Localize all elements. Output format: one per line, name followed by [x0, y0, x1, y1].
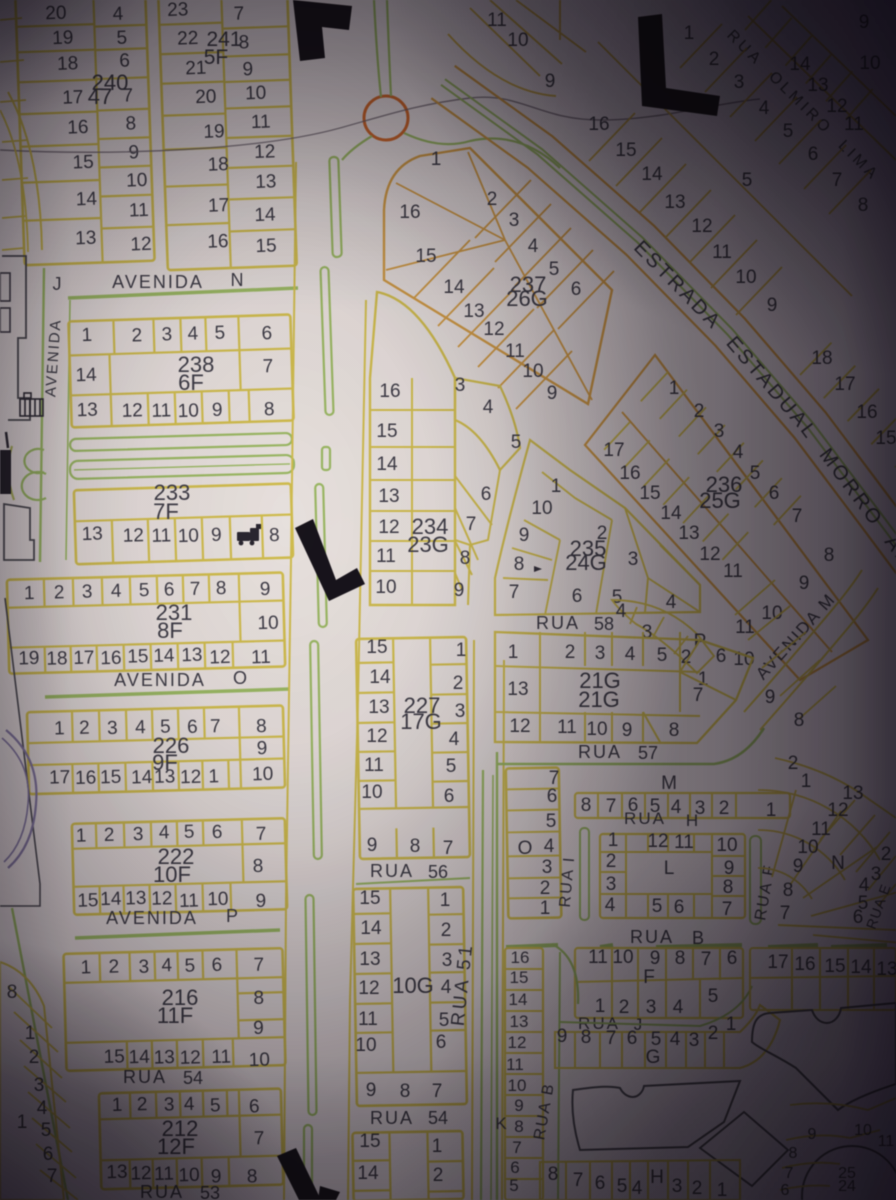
- svg-text:1: 1: [551, 476, 562, 497]
- svg-text:G: G: [646, 1047, 661, 1068]
- svg-text:14: 14: [131, 767, 153, 789]
- svg-text:14: 14: [128, 1047, 150, 1069]
- svg-text:11: 11: [506, 1055, 524, 1074]
- svg-text:5: 5: [546, 811, 557, 832]
- svg-text:12: 12: [180, 767, 202, 789]
- svg-text:7: 7: [432, 1081, 443, 1102]
- svg-text:9: 9: [859, 12, 870, 33]
- svg-text:2: 2: [719, 798, 730, 819]
- svg-text:6: 6: [212, 822, 223, 843]
- svg-text:4: 4: [449, 729, 460, 750]
- svg-text:15: 15: [255, 235, 277, 257]
- svg-text:13: 13: [463, 301, 484, 322]
- svg-text:13: 13: [876, 959, 896, 980]
- svg-text:8: 8: [669, 720, 680, 741]
- svg-text:K: K: [495, 1114, 507, 1133]
- svg-text:N: N: [231, 270, 244, 290]
- svg-text:17: 17: [767, 952, 788, 973]
- svg-text:10: 10: [177, 400, 199, 422]
- svg-text:6: 6: [510, 1158, 519, 1177]
- svg-text:8: 8: [824, 545, 835, 566]
- svg-text:10: 10: [249, 1050, 271, 1072]
- svg-text:8: 8: [252, 856, 263, 877]
- svg-text:3: 3: [82, 581, 93, 602]
- svg-text:5: 5: [41, 1120, 52, 1141]
- svg-text:3: 3: [455, 701, 466, 722]
- svg-text:6: 6: [808, 144, 819, 165]
- svg-text:9: 9: [211, 525, 222, 546]
- svg-text:16: 16: [588, 114, 609, 135]
- svg-text:8: 8: [247, 1166, 258, 1187]
- svg-text:12: 12: [358, 978, 379, 999]
- svg-text:25G: 25G: [699, 488, 741, 513]
- svg-text:1: 1: [456, 640, 467, 661]
- svg-text:3: 3: [442, 950, 453, 971]
- svg-text:13: 13: [81, 523, 103, 545]
- svg-text:8: 8: [675, 948, 686, 969]
- svg-text:7: 7: [443, 838, 454, 859]
- svg-text:18: 18: [57, 53, 79, 75]
- svg-text:3: 3: [455, 375, 466, 396]
- svg-text:8: 8: [783, 880, 794, 901]
- svg-text:12: 12: [647, 831, 668, 852]
- svg-text:19: 19: [203, 121, 225, 143]
- svg-text:2: 2: [441, 920, 452, 941]
- svg-text:14: 14: [75, 365, 97, 387]
- svg-text:11: 11: [151, 525, 171, 547]
- svg-text:2: 2: [104, 825, 115, 846]
- svg-text:9: 9: [454, 580, 465, 601]
- svg-text:14: 14: [369, 667, 391, 688]
- svg-text:L: L: [664, 858, 675, 879]
- svg-text:16: 16: [379, 381, 400, 402]
- svg-text:10: 10: [245, 83, 267, 105]
- svg-text:15: 15: [376, 421, 397, 442]
- svg-text:20: 20: [45, 3, 67, 25]
- svg-text:17: 17: [49, 767, 71, 789]
- svg-text:58: 58: [594, 614, 614, 634]
- svg-text:9: 9: [724, 858, 735, 879]
- svg-text:7: 7: [253, 955, 264, 976]
- svg-text:3: 3: [714, 421, 725, 442]
- svg-text:11: 11: [557, 717, 577, 738]
- svg-text:11: 11: [251, 647, 271, 669]
- svg-text:1: 1: [801, 771, 812, 792]
- svg-text:6: 6: [571, 279, 582, 300]
- svg-text:3: 3: [161, 324, 172, 345]
- svg-text:O: O: [233, 668, 247, 688]
- svg-text:12: 12: [122, 525, 144, 547]
- svg-text:4: 4: [671, 797, 682, 818]
- svg-text:6: 6: [119, 50, 130, 71]
- svg-text:10: 10: [531, 498, 552, 519]
- svg-text:6: 6: [769, 483, 780, 504]
- svg-text:6: 6: [627, 1028, 638, 1049]
- svg-text:1: 1: [17, 1112, 28, 1133]
- svg-text:3: 3: [628, 549, 639, 570]
- svg-text:12: 12: [209, 647, 231, 669]
- svg-text:9: 9: [767, 295, 778, 316]
- svg-text:3: 3: [595, 643, 606, 664]
- svg-text:2: 2: [137, 1094, 148, 1115]
- svg-text:8: 8: [460, 548, 471, 569]
- svg-text:24: 24: [838, 1178, 856, 1195]
- svg-text:21G: 21G: [578, 687, 620, 712]
- svg-text:3: 3: [509, 210, 520, 231]
- svg-text:1: 1: [24, 583, 35, 604]
- svg-text:1: 1: [76, 825, 87, 846]
- svg-text:1: 1: [726, 1014, 737, 1035]
- svg-text:47: 47: [88, 84, 112, 109]
- svg-text:2: 2: [881, 844, 892, 865]
- svg-text:3: 3: [542, 857, 553, 878]
- svg-text:7: 7: [509, 582, 520, 603]
- svg-text:5F: 5F: [204, 46, 229, 69]
- svg-text:13: 13: [153, 1047, 175, 1069]
- svg-text:4: 4: [666, 592, 677, 613]
- svg-text:16: 16: [399, 202, 420, 223]
- svg-text:2: 2: [606, 851, 617, 872]
- svg-text:1: 1: [684, 23, 695, 44]
- svg-text:2: 2: [619, 997, 630, 1018]
- svg-text:6: 6: [595, 1173, 606, 1194]
- svg-text:13: 13: [378, 486, 399, 507]
- svg-text:6: 6: [164, 579, 175, 600]
- svg-text:5: 5: [652, 896, 663, 917]
- svg-text:16: 16: [619, 463, 640, 484]
- svg-text:17: 17: [603, 440, 624, 461]
- svg-text:14: 14: [850, 957, 872, 978]
- svg-text:9: 9: [128, 142, 139, 163]
- svg-text:1: 1: [669, 378, 680, 399]
- svg-text:1: 1: [508, 642, 519, 663]
- svg-text:4: 4: [616, 601, 627, 622]
- svg-text:15: 15: [127, 646, 149, 668]
- svg-text:3: 3: [34, 1075, 45, 1096]
- svg-text:8: 8: [723, 877, 734, 898]
- svg-text:RUA: RUA: [140, 1182, 184, 1200]
- svg-text:1: 1: [440, 890, 451, 911]
- svg-text:8: 8: [7, 982, 18, 1003]
- svg-text:7: 7: [606, 796, 617, 817]
- svg-text:15: 15: [72, 152, 94, 174]
- svg-text:AVENIDA: AVENIDA: [106, 908, 198, 928]
- svg-text:15: 15: [415, 246, 436, 267]
- svg-text:9: 9: [765, 687, 776, 708]
- svg-text:M: M: [661, 773, 677, 794]
- svg-text:7: 7: [233, 3, 244, 24]
- svg-text:9: 9: [519, 525, 530, 546]
- svg-text:7: 7: [701, 949, 712, 970]
- svg-text:7F: 7F: [153, 499, 179, 524]
- svg-text:5: 5: [742, 170, 753, 191]
- svg-text:9: 9: [255, 891, 266, 912]
- svg-text:2: 2: [487, 189, 498, 210]
- svg-text:9: 9: [260, 579, 271, 600]
- svg-text:14: 14: [509, 990, 528, 1009]
- svg-text:J: J: [53, 274, 62, 294]
- svg-text:7: 7: [466, 514, 477, 535]
- svg-text:4: 4: [625, 644, 636, 665]
- svg-text:11: 11: [505, 341, 525, 362]
- svg-text:5: 5: [783, 121, 794, 142]
- svg-text:8: 8: [789, 1145, 798, 1162]
- svg-text:8: 8: [256, 716, 267, 737]
- svg-text:9: 9: [793, 856, 804, 877]
- svg-text:12: 12: [121, 400, 143, 422]
- svg-text:5: 5: [214, 323, 225, 344]
- svg-text:5: 5: [617, 1176, 628, 1197]
- svg-text:14: 14: [100, 889, 122, 911]
- svg-text:24G: 24G: [565, 550, 607, 575]
- svg-text:P: P: [226, 906, 238, 926]
- svg-text:16: 16: [207, 231, 229, 253]
- svg-text:RUA: RUA: [578, 742, 622, 762]
- svg-text:2: 2: [131, 325, 142, 346]
- svg-text:3: 3: [138, 957, 149, 978]
- svg-text:10: 10: [854, 1122, 872, 1139]
- svg-text:6: 6: [249, 1096, 260, 1117]
- svg-text:3: 3: [646, 997, 657, 1018]
- svg-text:10F: 10F: [153, 862, 191, 887]
- svg-text:12: 12: [509, 716, 530, 737]
- svg-text:12: 12: [378, 517, 399, 538]
- svg-text:8: 8: [548, 1164, 559, 1185]
- svg-text:13: 13: [76, 400, 98, 422]
- svg-text:14: 14: [254, 204, 276, 226]
- svg-text:7: 7: [512, 1138, 521, 1157]
- svg-text:15: 15: [510, 968, 529, 987]
- svg-text:10: 10: [508, 1076, 527, 1095]
- svg-text:8: 8: [216, 578, 227, 599]
- svg-text:10: 10: [257, 613, 279, 635]
- svg-text:AVENIDA: AVENIDA: [114, 670, 206, 690]
- svg-text:8: 8: [125, 113, 136, 134]
- svg-text:15: 15: [359, 888, 380, 909]
- svg-text:2: 2: [79, 718, 90, 739]
- svg-text:4: 4: [112, 4, 124, 25]
- svg-text:11: 11: [723, 561, 743, 582]
- svg-text:12F: 12F: [157, 1134, 195, 1159]
- svg-text:O: O: [518, 838, 533, 859]
- svg-text:1: 1: [54, 718, 65, 739]
- svg-text:57: 57: [638, 743, 658, 763]
- svg-text:7: 7: [47, 1166, 58, 1187]
- svg-text:5: 5: [549, 259, 560, 280]
- svg-text:8: 8: [514, 554, 525, 575]
- svg-text:6: 6: [853, 907, 864, 928]
- svg-text:RUA: RUA: [370, 861, 414, 881]
- svg-text:15: 15: [875, 428, 896, 449]
- svg-text:3: 3: [133, 824, 144, 845]
- svg-text:6: 6: [781, 1182, 790, 1199]
- svg-text:8: 8: [858, 195, 869, 216]
- svg-text:1: 1: [432, 1136, 443, 1157]
- svg-text:16: 16: [856, 402, 877, 423]
- svg-text:9: 9: [622, 720, 633, 741]
- svg-text:8: 8: [400, 1081, 411, 1102]
- svg-text:1: 1: [540, 898, 551, 919]
- svg-text:5: 5: [708, 986, 719, 1007]
- svg-text:11: 11: [376, 546, 396, 567]
- svg-text:54: 54: [428, 1108, 448, 1128]
- svg-text:H: H: [686, 811, 698, 830]
- svg-text:15: 15: [100, 767, 122, 789]
- svg-text:7: 7: [254, 1128, 265, 1149]
- svg-text:RUA: RUA: [123, 1067, 167, 1087]
- svg-text:11: 11: [364, 755, 384, 776]
- svg-text:11: 11: [712, 242, 732, 263]
- svg-text:11: 11: [251, 111, 271, 133]
- svg-text:7: 7: [573, 1170, 584, 1191]
- svg-text:17: 17: [208, 195, 230, 217]
- svg-text:9: 9: [242, 59, 253, 80]
- svg-text:4: 4: [673, 997, 684, 1018]
- svg-text:11: 11: [588, 947, 608, 968]
- svg-text:4: 4: [111, 581, 123, 602]
- svg-text:2: 2: [433, 1165, 444, 1186]
- svg-text:2: 2: [788, 753, 799, 774]
- svg-text:3: 3: [164, 1094, 175, 1115]
- svg-text:13: 13: [368, 697, 389, 718]
- svg-text:22: 22: [177, 28, 199, 50]
- svg-text:7: 7: [792, 506, 803, 527]
- svg-text:2: 2: [453, 673, 464, 694]
- svg-text:11: 11: [129, 200, 149, 222]
- svg-text:18: 18: [811, 348, 832, 369]
- svg-text:8F: 8F: [157, 618, 183, 643]
- svg-text:1: 1: [112, 1095, 123, 1116]
- svg-text:1: 1: [431, 149, 442, 170]
- svg-text:10: 10: [177, 525, 199, 547]
- svg-text:5: 5: [509, 1176, 518, 1195]
- svg-text:7: 7: [780, 903, 791, 924]
- svg-text:4: 4: [159, 822, 171, 843]
- svg-text:15: 15: [824, 956, 845, 977]
- svg-text:10: 10: [355, 1035, 376, 1056]
- svg-text:1: 1: [25, 1023, 36, 1044]
- svg-text:3: 3: [689, 1030, 700, 1051]
- svg-text:17: 17: [73, 647, 95, 669]
- svg-text:7: 7: [256, 824, 267, 845]
- svg-text:4: 4: [135, 717, 147, 738]
- svg-text:11: 11: [487, 10, 507, 31]
- svg-text:26G: 26G: [506, 286, 548, 311]
- svg-text:10: 10: [586, 719, 607, 740]
- svg-text:11: 11: [844, 114, 864, 135]
- svg-text:1: 1: [208, 766, 219, 787]
- svg-text:4: 4: [37, 1098, 48, 1119]
- svg-text:7: 7: [693, 685, 704, 706]
- svg-text:9: 9: [367, 835, 378, 856]
- svg-text:7: 7: [190, 579, 201, 600]
- svg-text:6: 6: [481, 484, 492, 505]
- svg-text:RUA: RUA: [370, 1108, 414, 1128]
- svg-text:13: 13: [255, 171, 277, 193]
- svg-text:H: H: [650, 1167, 664, 1188]
- svg-text:2: 2: [54, 582, 65, 603]
- svg-text:9: 9: [253, 1018, 264, 1039]
- svg-text:14: 14: [376, 454, 398, 475]
- svg-text:6F: 6F: [178, 370, 204, 395]
- svg-text:11: 11: [735, 617, 755, 638]
- svg-text:RUA: RUA: [536, 613, 580, 633]
- svg-text:5: 5: [184, 822, 195, 843]
- svg-text:13: 13: [510, 1012, 529, 1031]
- svg-text:17: 17: [834, 374, 855, 395]
- svg-text:53: 53: [200, 1183, 220, 1200]
- svg-text:23: 23: [167, 0, 189, 21]
- svg-text:16: 16: [511, 948, 530, 967]
- svg-text:16: 16: [794, 954, 815, 975]
- svg-text:15: 15: [103, 1046, 125, 1068]
- svg-text:6: 6: [716, 646, 727, 667]
- svg-text:4: 4: [483, 397, 494, 418]
- svg-text:10: 10: [735, 267, 756, 288]
- svg-text:1: 1: [80, 957, 91, 978]
- svg-text:3: 3: [734, 72, 745, 93]
- svg-text:16: 16: [75, 767, 97, 789]
- svg-text:10: 10: [716, 835, 737, 856]
- svg-text:9: 9: [212, 400, 223, 421]
- svg-text:1: 1: [766, 800, 777, 821]
- svg-text:13: 13: [181, 645, 203, 667]
- svg-text:10: 10: [252, 764, 274, 786]
- svg-text:8: 8: [581, 1027, 592, 1048]
- svg-text:4: 4: [184, 1094, 196, 1115]
- svg-text:14: 14: [357, 1163, 379, 1184]
- svg-text:13: 13: [807, 75, 828, 96]
- svg-text:7: 7: [832, 170, 843, 191]
- svg-text:16: 16: [67, 117, 89, 139]
- svg-text:12: 12: [254, 141, 276, 163]
- svg-text:6: 6: [211, 955, 222, 976]
- svg-text:13: 13: [678, 523, 699, 544]
- svg-text:10: 10: [797, 837, 818, 858]
- svg-text:23G: 23G: [407, 532, 449, 557]
- svg-text:14: 14: [660, 503, 682, 524]
- svg-text:19: 19: [18, 648, 40, 670]
- svg-text:5: 5: [184, 955, 195, 976]
- svg-text:12: 12: [827, 800, 848, 821]
- svg-text:2: 2: [29, 1047, 40, 1068]
- svg-text:1: 1: [81, 325, 92, 346]
- svg-text:20: 20: [195, 86, 217, 108]
- svg-text:7: 7: [210, 716, 221, 737]
- svg-text:10: 10: [522, 361, 543, 382]
- svg-text:6: 6: [674, 897, 685, 918]
- svg-text:5: 5: [446, 756, 457, 777]
- svg-text:12: 12: [179, 1047, 201, 1069]
- svg-text:14: 14: [641, 164, 663, 185]
- svg-text:18: 18: [207, 154, 229, 176]
- svg-text:12: 12: [366, 726, 387, 747]
- svg-text:9: 9: [545, 71, 556, 92]
- svg-text:15: 15: [77, 890, 99, 912]
- svg-text:9: 9: [650, 948, 661, 969]
- svg-text:2: 2: [692, 1178, 703, 1199]
- svg-text:7: 7: [262, 356, 273, 377]
- svg-text:4: 4: [670, 1029, 681, 1050]
- svg-text:17: 17: [62, 87, 84, 109]
- svg-text:5: 5: [139, 580, 150, 601]
- svg-text:4: 4: [632, 1178, 643, 1199]
- svg-text:9: 9: [799, 573, 810, 594]
- svg-text:12: 12: [483, 319, 504, 340]
- svg-text:11: 11: [358, 1009, 378, 1030]
- svg-text:7: 7: [606, 1028, 617, 1049]
- svg-text:8: 8: [253, 988, 264, 1009]
